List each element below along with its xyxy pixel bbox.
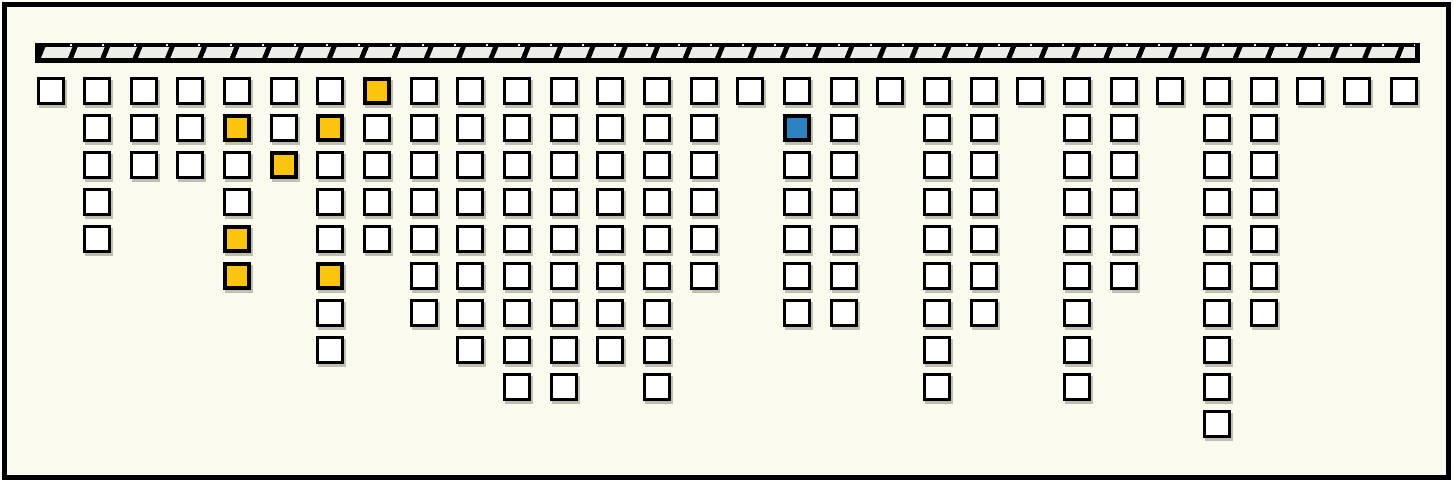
cell-c12-r6[interactable]	[550, 262, 578, 290]
cell-c5-r2-yellow[interactable]	[223, 114, 251, 142]
cell-c11-r6[interactable]	[503, 262, 531, 290]
cell-c5-r6-yellow[interactable]	[223, 262, 251, 290]
cell-c15-r5[interactable]	[690, 225, 718, 253]
cell-c18-r2[interactable]	[830, 114, 858, 142]
cell-c2-r3[interactable]	[83, 151, 111, 179]
cell-c10-r4[interactable]	[456, 188, 484, 216]
cell-c5-r3[interactable]	[223, 151, 251, 179]
cell-c9-r6[interactable]	[410, 262, 438, 290]
cell-c18-r4[interactable]	[830, 188, 858, 216]
cell-c15-r6[interactable]	[690, 262, 718, 290]
cell-c27-r2[interactable]	[1250, 114, 1278, 142]
cell-c12-r8[interactable]	[550, 336, 578, 364]
cell-c6-r1[interactable]	[270, 77, 298, 105]
cell-c9-r4[interactable]	[410, 188, 438, 216]
cell-c17-r2-blue[interactable]	[783, 114, 811, 142]
cell-c21-r3[interactable]	[970, 151, 998, 179]
cell-c10-r7[interactable]	[456, 299, 484, 327]
cell-c26-r6[interactable]	[1203, 262, 1231, 290]
cell-c24-r4[interactable]	[1110, 188, 1138, 216]
cell-c13-r4[interactable]	[596, 188, 624, 216]
cell-c23-r3[interactable]	[1063, 151, 1091, 179]
cell-c15-r3[interactable]	[690, 151, 718, 179]
cell-c4-r3[interactable]	[176, 151, 204, 179]
cell-c26-r2[interactable]	[1203, 114, 1231, 142]
cell-c23-r7[interactable]	[1063, 299, 1091, 327]
cell-c21-r2[interactable]	[970, 114, 998, 142]
cell-c4-r2[interactable]	[176, 114, 204, 142]
cell-c8-r3[interactable]	[363, 151, 391, 179]
cell-c10-r2[interactable]	[456, 114, 484, 142]
cell-c13-r1[interactable]	[596, 77, 624, 105]
cell-c12-r3[interactable]	[550, 151, 578, 179]
cell-c2-r1[interactable]	[83, 77, 111, 105]
cell-c27-r5[interactable]	[1250, 225, 1278, 253]
cell-c18-r6[interactable]	[830, 262, 858, 290]
cell-c15-r1[interactable]	[690, 77, 718, 105]
cell-c24-r2[interactable]	[1110, 114, 1138, 142]
cell-c14-r3[interactable]	[643, 151, 671, 179]
cell-c7-r2-yellow[interactable]	[316, 114, 344, 142]
cell-c10-r3[interactable]	[456, 151, 484, 179]
cell-c7-r8[interactable]	[316, 336, 344, 364]
cell-c3-r3[interactable]	[130, 151, 158, 179]
cell-c3-r2[interactable]	[130, 114, 158, 142]
cell-c9-r2[interactable]	[410, 114, 438, 142]
cell-c20-r8[interactable]	[923, 336, 951, 364]
cell-c8-r2[interactable]	[363, 114, 391, 142]
cell-c24-r6[interactable]	[1110, 262, 1138, 290]
cell-c11-r5[interactable]	[503, 225, 531, 253]
cell-c25-r1[interactable]	[1156, 77, 1184, 105]
cell-c26-r1[interactable]	[1203, 77, 1231, 105]
cell-c11-r1[interactable]	[503, 77, 531, 105]
cell-c23-r2[interactable]	[1063, 114, 1091, 142]
cell-c18-r5[interactable]	[830, 225, 858, 253]
cell-c23-r4[interactable]	[1063, 188, 1091, 216]
cell-c12-r5[interactable]	[550, 225, 578, 253]
hatched-ceiling-bar	[35, 43, 1420, 63]
cell-c22-r1[interactable]	[1016, 77, 1044, 105]
cell-c20-r3[interactable]	[923, 151, 951, 179]
cell-c7-r5[interactable]	[316, 225, 344, 253]
cell-c14-r6[interactable]	[643, 262, 671, 290]
cell-c7-r3[interactable]	[316, 151, 344, 179]
cell-c15-r2[interactable]	[690, 114, 718, 142]
cell-c27-r3[interactable]	[1250, 151, 1278, 179]
cell-c17-r1[interactable]	[783, 77, 811, 105]
cell-c5-r5-yellow[interactable]	[223, 225, 251, 253]
cell-c7-r1[interactable]	[316, 77, 344, 105]
cell-c14-r1[interactable]	[643, 77, 671, 105]
cell-c13-r5[interactable]	[596, 225, 624, 253]
cell-c13-r8[interactable]	[596, 336, 624, 364]
cell-c13-r6[interactable]	[596, 262, 624, 290]
cell-c12-r4[interactable]	[550, 188, 578, 216]
cell-c23-r8[interactable]	[1063, 336, 1091, 364]
cell-c7-r6-yellow[interactable]	[316, 262, 344, 290]
cell-c17-r3[interactable]	[783, 151, 811, 179]
cell-c18-r1[interactable]	[830, 77, 858, 105]
cell-c8-r5[interactable]	[363, 225, 391, 253]
cell-c26-r8[interactable]	[1203, 336, 1231, 364]
cell-c26-r3[interactable]	[1203, 151, 1231, 179]
cell-c21-r6[interactable]	[970, 262, 998, 290]
cell-c9-r7[interactable]	[410, 299, 438, 327]
cell-c10-r1[interactable]	[456, 77, 484, 105]
diagram-canvas	[0, 0, 1454, 483]
cell-c14-r2[interactable]	[643, 114, 671, 142]
cell-c9-r1[interactable]	[410, 77, 438, 105]
cell-c12-r2[interactable]	[550, 114, 578, 142]
cell-c30-r1[interactable]	[1390, 77, 1418, 105]
cell-c8-r4[interactable]	[363, 188, 391, 216]
cell-c10-r5[interactable]	[456, 225, 484, 253]
cell-c2-r5[interactable]	[83, 225, 111, 253]
cell-c27-r6[interactable]	[1250, 262, 1278, 290]
cell-c20-r7[interactable]	[923, 299, 951, 327]
cell-c1-r1[interactable]	[37, 77, 65, 105]
cell-c17-r5[interactable]	[783, 225, 811, 253]
cell-c20-r2[interactable]	[923, 114, 951, 142]
cell-c13-r3[interactable]	[596, 151, 624, 179]
cell-c23-r9[interactable]	[1063, 373, 1091, 401]
cell-c24-r1[interactable]	[1110, 77, 1138, 105]
cell-c14-r7[interactable]	[643, 299, 671, 327]
cell-c13-r7[interactable]	[596, 299, 624, 327]
cell-c2-r4[interactable]	[83, 188, 111, 216]
cell-c5-r4[interactable]	[223, 188, 251, 216]
cell-c2-r2[interactable]	[83, 114, 111, 142]
cell-c21-r4[interactable]	[970, 188, 998, 216]
cell-c7-r4[interactable]	[316, 188, 344, 216]
cell-c10-r6[interactable]	[456, 262, 484, 290]
cell-c26-r4[interactable]	[1203, 188, 1231, 216]
cell-c24-r3[interactable]	[1110, 151, 1138, 179]
cell-c29-r1[interactable]	[1343, 77, 1371, 105]
cell-c20-r1[interactable]	[923, 77, 951, 105]
cell-c26-r10[interactable]	[1203, 410, 1231, 438]
cell-c23-r5[interactable]	[1063, 225, 1091, 253]
cell-c11-r4[interactable]	[503, 188, 531, 216]
cell-c14-r5[interactable]	[643, 225, 671, 253]
cell-c11-r2[interactable]	[503, 114, 531, 142]
cell-c27-r7[interactable]	[1250, 299, 1278, 327]
cell-c23-r6[interactable]	[1063, 262, 1091, 290]
cell-c18-r3[interactable]	[830, 151, 858, 179]
cell-c12-r1[interactable]	[550, 77, 578, 105]
cell-c11-r7[interactable]	[503, 299, 531, 327]
cell-c11-r9[interactable]	[503, 373, 531, 401]
cell-c28-r1[interactable]	[1296, 77, 1324, 105]
cell-c13-r2[interactable]	[596, 114, 624, 142]
cell-c14-r8[interactable]	[643, 336, 671, 364]
cell-c11-r8[interactable]	[503, 336, 531, 364]
cell-c11-r3[interactable]	[503, 151, 531, 179]
cell-c6-r2[interactable]	[270, 114, 298, 142]
cell-c7-r7[interactable]	[316, 299, 344, 327]
cell-c27-r4[interactable]	[1250, 188, 1278, 216]
cell-c26-r7[interactable]	[1203, 299, 1231, 327]
cell-c8-r1-yellow[interactable]	[363, 77, 391, 105]
cell-c4-r1[interactable]	[176, 77, 204, 105]
cell-c16-r1[interactable]	[736, 77, 764, 105]
cell-c23-r1[interactable]	[1063, 77, 1091, 105]
cell-c9-r5[interactable]	[410, 225, 438, 253]
cell-c17-r7[interactable]	[783, 299, 811, 327]
cell-c3-r1[interactable]	[130, 77, 158, 105]
cell-c6-r3-yellow[interactable]	[270, 151, 298, 179]
cell-c14-r9[interactable]	[643, 373, 671, 401]
cell-c20-r5[interactable]	[923, 225, 951, 253]
cell-c26-r9[interactable]	[1203, 373, 1231, 401]
cell-c17-r6[interactable]	[783, 262, 811, 290]
cell-c9-r3[interactable]	[410, 151, 438, 179]
outer-frame	[2, 2, 1451, 480]
cell-c12-r9[interactable]	[550, 373, 578, 401]
cell-c21-r7[interactable]	[970, 299, 998, 327]
cell-c20-r4[interactable]	[923, 188, 951, 216]
cell-c10-r8[interactable]	[456, 336, 484, 364]
cell-c19-r1[interactable]	[876, 77, 904, 105]
cell-c27-r1[interactable]	[1250, 77, 1278, 105]
cell-c5-r1[interactable]	[223, 77, 251, 105]
cell-c26-r5[interactable]	[1203, 225, 1231, 253]
cell-c20-r9[interactable]	[923, 373, 951, 401]
cell-c17-r4[interactable]	[783, 188, 811, 216]
cell-c15-r4[interactable]	[690, 188, 718, 216]
cell-c21-r5[interactable]	[970, 225, 998, 253]
cell-c14-r4[interactable]	[643, 188, 671, 216]
cell-c18-r7[interactable]	[830, 299, 858, 327]
cell-c24-r5[interactable]	[1110, 225, 1138, 253]
cell-c21-r1[interactable]	[970, 77, 998, 105]
cell-c20-r6[interactable]	[923, 262, 951, 290]
cell-c12-r7[interactable]	[550, 299, 578, 327]
